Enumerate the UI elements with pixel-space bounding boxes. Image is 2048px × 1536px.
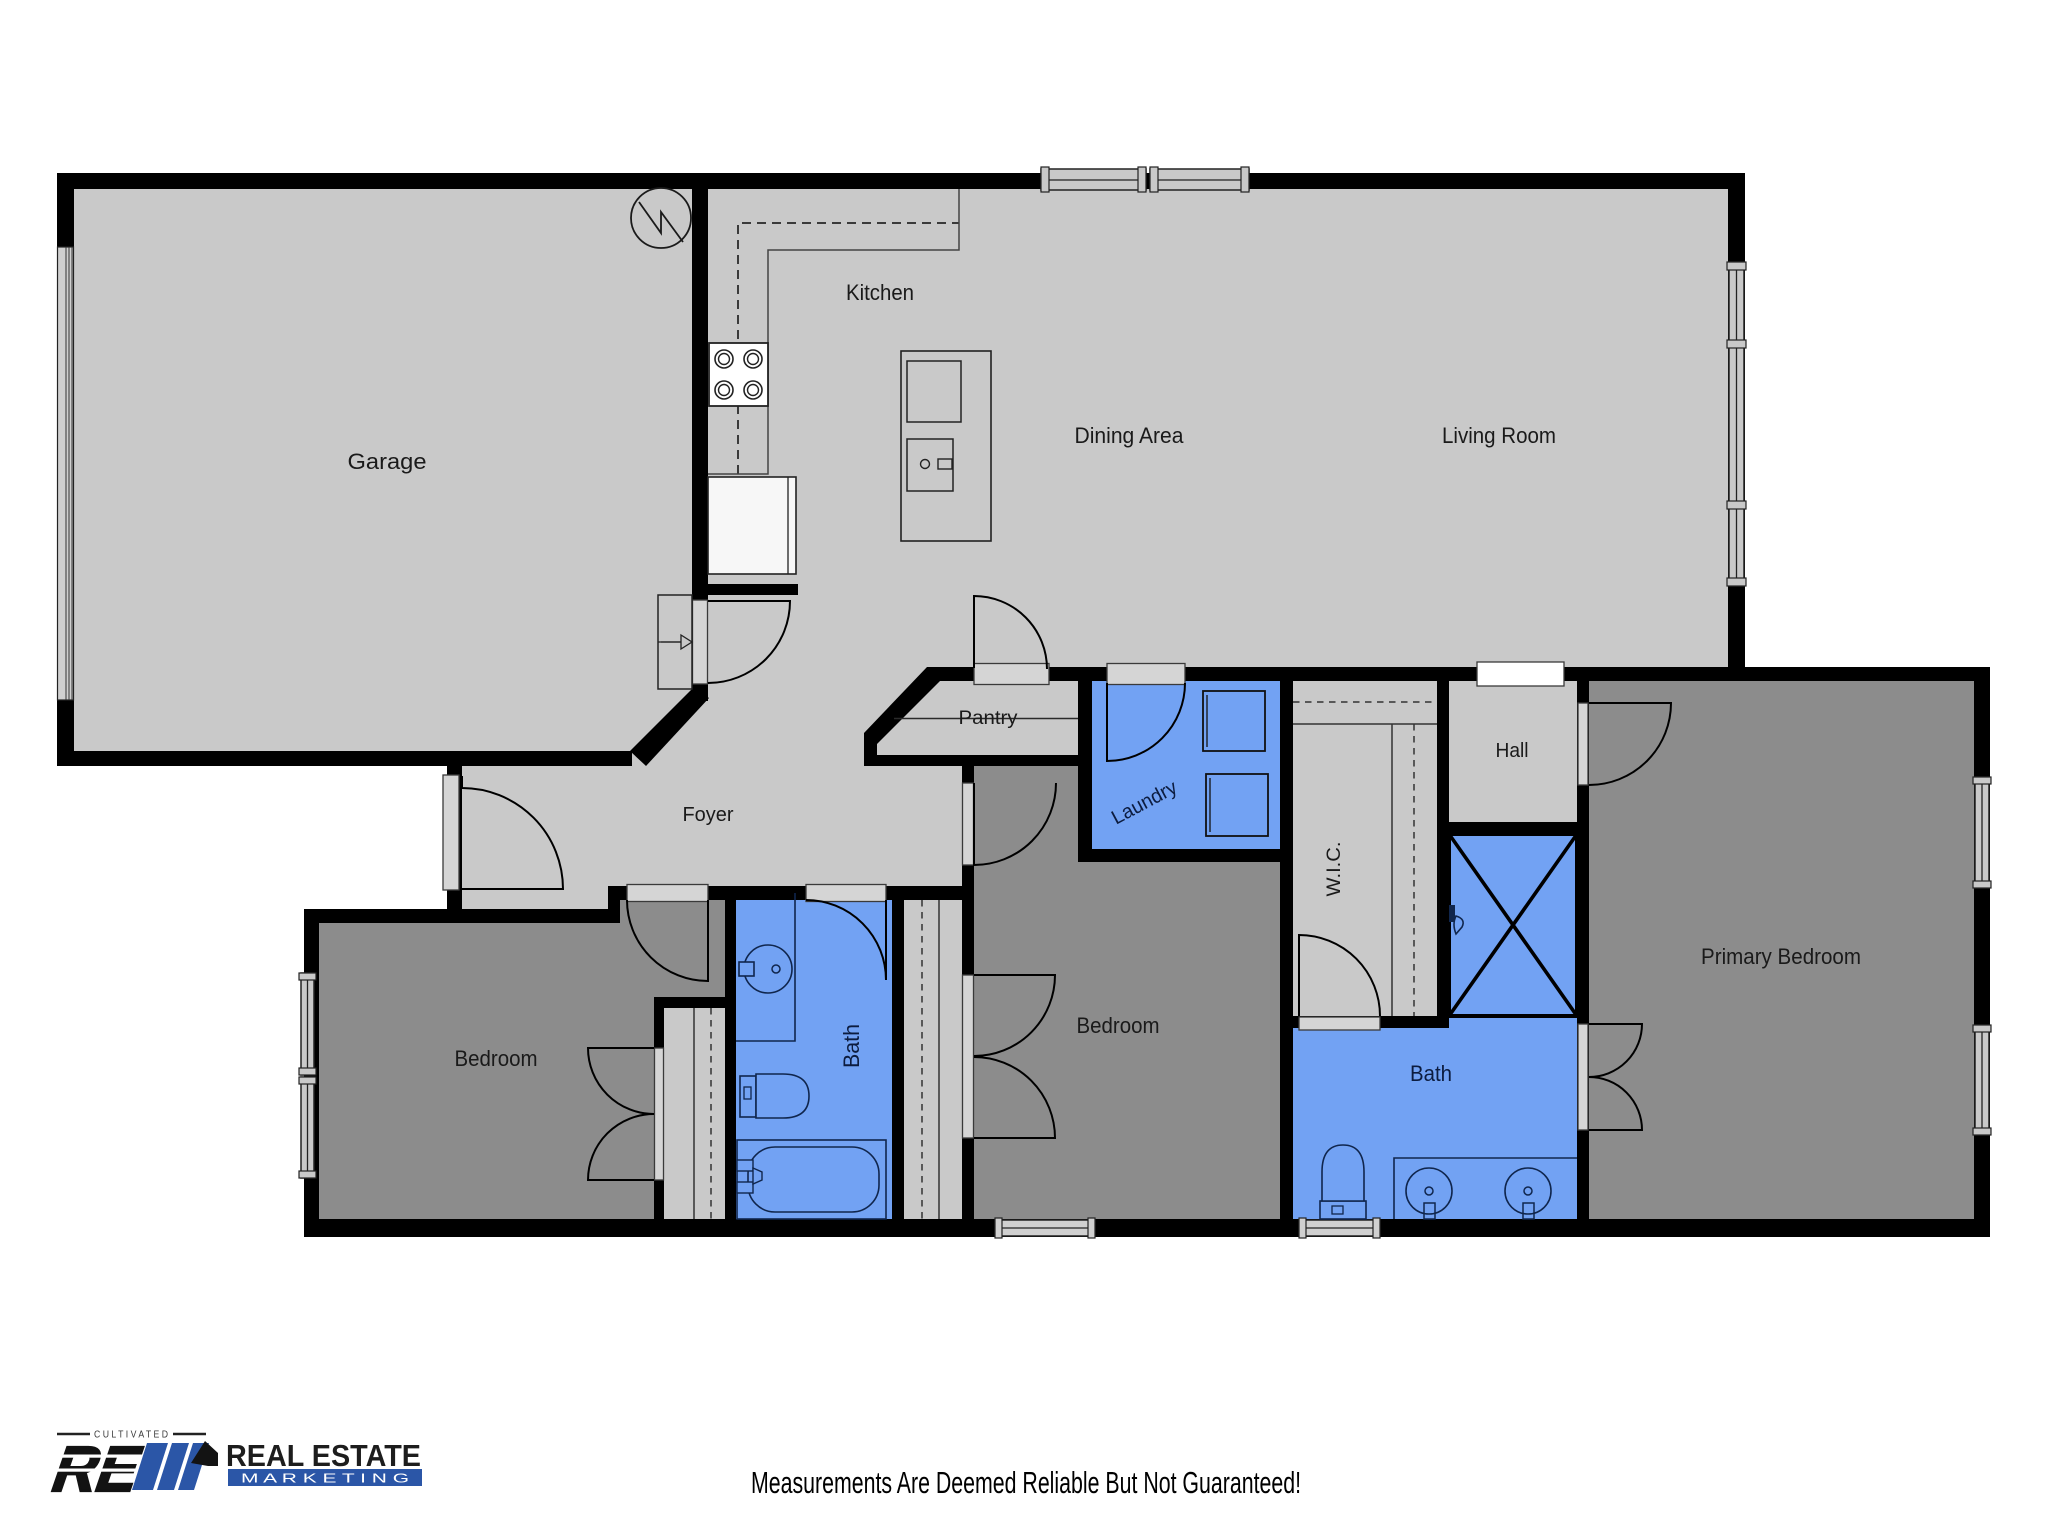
svg-text:REAL ESTATE: REAL ESTATE bbox=[226, 1438, 421, 1473]
svg-text:Bath: Bath bbox=[1410, 1061, 1452, 1086]
svg-text:Kitchen: Kitchen bbox=[846, 280, 914, 305]
svg-text:Bedroom: Bedroom bbox=[1077, 1013, 1160, 1038]
svg-text:Primary Bedroom: Primary Bedroom bbox=[1701, 944, 1861, 969]
svg-text:Dining Area: Dining Area bbox=[1075, 423, 1184, 448]
svg-text:Measurements Are Deemed Reliab: Measurements Are Deemed Reliable But Not… bbox=[751, 1465, 1301, 1500]
svg-text:Bedroom: Bedroom bbox=[455, 1046, 538, 1071]
svg-text:Living Room: Living Room bbox=[1442, 423, 1556, 448]
svg-text:Bath: Bath bbox=[839, 1024, 864, 1068]
svg-text:Garage: Garage bbox=[348, 449, 427, 474]
svg-text:Pantry: Pantry bbox=[959, 708, 1019, 729]
svg-text:Hall: Hall bbox=[1496, 740, 1529, 762]
svg-text:Foyer: Foyer bbox=[683, 804, 734, 826]
svg-text:W.I.C.: W.I.C. bbox=[1324, 842, 1345, 897]
svg-text:M A R K E T I N G: M A R K E T I N G bbox=[241, 1472, 409, 1486]
